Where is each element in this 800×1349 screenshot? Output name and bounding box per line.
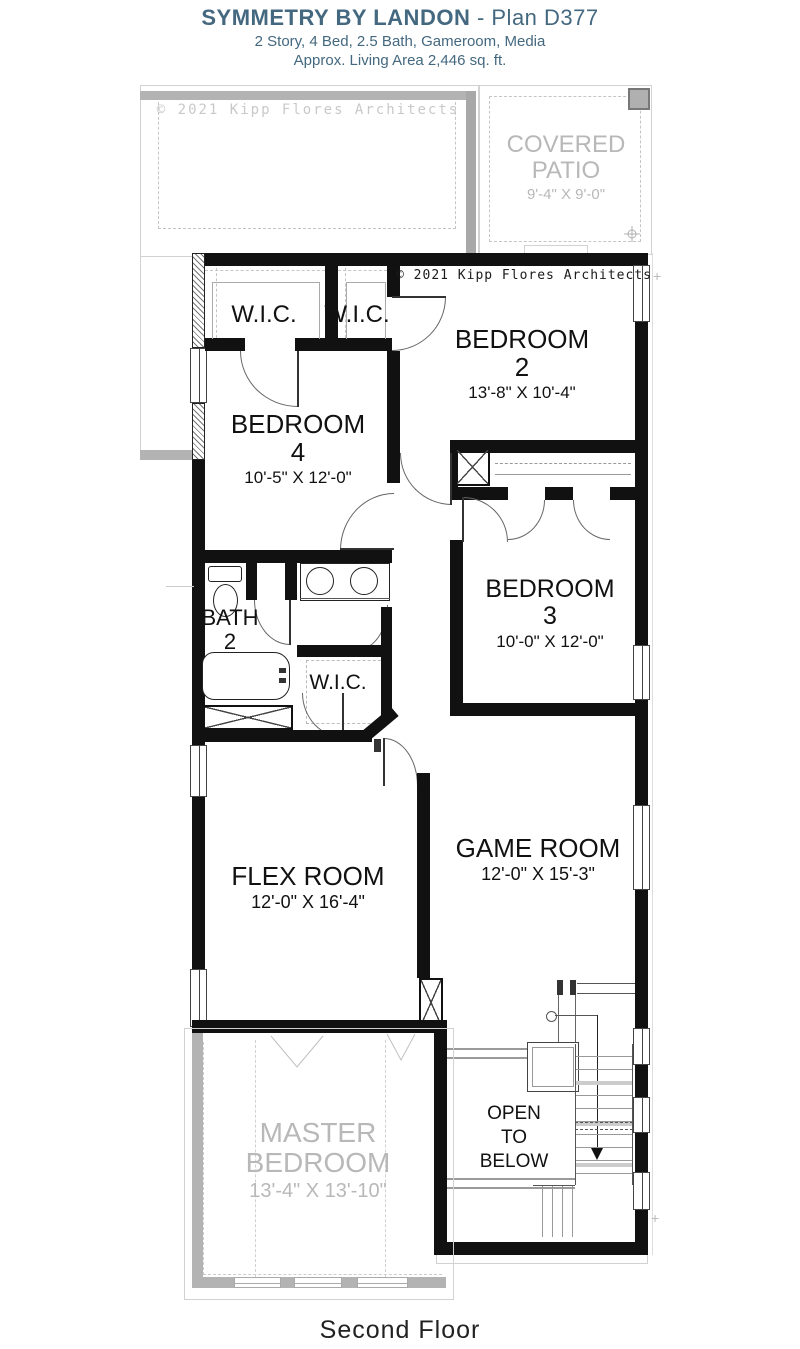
wall <box>192 550 392 563</box>
wall <box>635 1133 648 1172</box>
plan-subtitle: 2 Story, 4 Bed, 2.5 Bath, Gameroom, Medi… <box>0 33 800 50</box>
copyright-first-floor: © 2021 Kipp Flores Architects <box>157 102 459 118</box>
room-label-wic-hall: W.I.C. <box>307 672 368 695</box>
door-leaf <box>374 739 381 752</box>
roof-edge-line <box>140 255 141 460</box>
floor-plan-page: SYMMETRY BY LANDON - Plan D377 2 Story, … <box>0 0 800 1349</box>
first-floor-wall <box>408 1277 446 1288</box>
stair-treads <box>575 1044 633 1185</box>
room-dims: 13'-8" X 10'-4" <box>455 384 589 402</box>
door-leaf <box>462 497 464 542</box>
door-arc <box>463 497 508 542</box>
door-leaf <box>392 296 446 298</box>
plan-area: Approx. Living Area 2,446 sq. ft. <box>0 52 800 69</box>
stair-header-post <box>570 980 576 995</box>
room-name: GAME ROOM <box>456 834 621 862</box>
stair-header-line <box>577 983 635 984</box>
ceiling-break-mark <box>386 1033 416 1063</box>
sink <box>350 567 378 595</box>
closet-rod-dashed <box>495 463 631 464</box>
room-label-bedroom2: BEDROOM 2 13'-8" X 10'-4" <box>455 325 589 403</box>
room-label-open-to-below: OPEN TO BELOW <box>480 1102 549 1173</box>
room-name: TO <box>480 1126 549 1150</box>
stair-header-post <box>557 980 563 995</box>
room-name: W.I.C. <box>231 302 296 328</box>
room-name: BATH <box>201 606 258 630</box>
wall <box>635 890 648 1028</box>
door-arc <box>400 453 452 505</box>
room-label-wic-bedroom4: W.I.C. <box>231 302 296 328</box>
room-name: MASTER <box>246 1118 391 1148</box>
dimension-tick <box>166 586 194 587</box>
roof-edge-line <box>652 253 653 1255</box>
wall <box>610 487 648 500</box>
door-leaf <box>297 351 299 407</box>
tub-faucet <box>279 678 286 683</box>
sink <box>306 567 334 595</box>
wall <box>297 645 392 657</box>
patio-column <box>628 88 650 110</box>
room-label-master: MASTER BEDROOM 13'-4" X 13'-10" <box>246 1118 391 1202</box>
wall <box>417 773 430 978</box>
plan-number: - Plan D377 <box>470 5 598 30</box>
room-label-bath2: BATH 2 <box>201 606 258 654</box>
floor-caption: Second Floor <box>0 1316 800 1345</box>
wall <box>434 1242 648 1255</box>
page-title: SYMMETRY BY LANDON - Plan D377 <box>0 5 800 31</box>
wall <box>338 338 392 351</box>
window <box>190 348 207 403</box>
wall <box>450 703 648 716</box>
first-floor-window <box>234 1277 281 1288</box>
closet-shelf-line <box>495 474 631 475</box>
plan-header: SYMMETRY BY LANDON - Plan D377 2 Story, … <box>0 5 800 69</box>
wall <box>635 1065 648 1097</box>
room-dims: 12'-0" X 16'-4" <box>231 893 384 912</box>
room-number: 2 <box>455 353 589 381</box>
window <box>190 745 207 797</box>
room-dims: 10'-0" X 12'-0" <box>485 633 614 651</box>
room-name: BEDROOM <box>246 1148 391 1178</box>
first-floor-wall <box>281 1277 294 1288</box>
first-floor-window <box>357 1277 408 1288</box>
window <box>633 1172 650 1210</box>
stair-railing <box>447 1048 527 1059</box>
wall <box>381 607 392 720</box>
stair-dashed-line <box>575 1129 633 1130</box>
stair-dashed-line <box>575 1122 633 1123</box>
first-floor-window <box>294 1277 342 1288</box>
door-leaf <box>289 600 291 645</box>
room-number: 2 <box>201 630 258 654</box>
room-label-covered-patio: COVERED PATIO 9'-4" X 9'-0" <box>507 132 626 203</box>
wall <box>387 351 400 483</box>
room-name: BEDROOM <box>485 576 614 603</box>
stair-edge-line <box>575 995 576 1045</box>
door-arc <box>384 738 418 786</box>
window <box>633 645 650 700</box>
stair-start-marker <box>546 1011 557 1022</box>
stair-arrow-line <box>555 1015 597 1016</box>
plan-series-name: SYMMETRY BY LANDON <box>201 5 470 30</box>
room-label-game: GAME ROOM 12'-0" X 15'-3" <box>456 834 621 885</box>
door-arc <box>340 493 394 550</box>
room-name: W.I.C. <box>309 672 366 695</box>
stair-header-line <box>577 993 635 994</box>
survey-marker-icon <box>624 226 640 242</box>
first-floor-wall <box>466 91 476 253</box>
room-name: FLEX ROOM <box>231 862 384 890</box>
ceiling-break-mark <box>270 1035 324 1069</box>
hatched-wall <box>192 403 205 460</box>
stair-treads-lower <box>533 1185 575 1237</box>
dimension-marker-icon: + <box>651 1210 659 1226</box>
wall <box>285 563 297 600</box>
first-floor-wall <box>342 1277 357 1288</box>
room-name: PATIO <box>507 158 626 184</box>
window <box>633 1097 650 1133</box>
wall <box>192 797 205 969</box>
room-dims: 12'-0" X 15'-3" <box>456 865 621 884</box>
room-name: COVERED <box>507 132 626 158</box>
door-leaf <box>383 738 385 786</box>
room-name: W.I.C. <box>324 302 389 328</box>
bathtub <box>202 652 290 700</box>
door-arc <box>240 351 298 407</box>
room-number: 4 <box>231 438 365 466</box>
room-label-bedroom4: BEDROOM 4 10'-5" X 12'-0" <box>231 410 365 488</box>
first-floor-wall <box>140 91 467 100</box>
foundation-line <box>436 1255 648 1264</box>
room-label-wic-bedroom2: W.I.C. <box>324 302 389 328</box>
room-dims: 9'-4" X 9'-0" <box>507 187 626 203</box>
door-arc <box>254 600 290 645</box>
wall <box>192 730 372 742</box>
door-arc <box>508 500 545 540</box>
first-floor-wall <box>192 1033 203 1288</box>
toilet-tank <box>208 566 242 582</box>
wall <box>192 460 205 745</box>
stair-landing-box <box>527 1042 579 1092</box>
window <box>190 969 207 1027</box>
wall <box>246 563 257 600</box>
copyright-second-floor: © 2021 Kipp Flores Architects <box>396 268 652 283</box>
room-name: BEDROOM <box>231 410 365 438</box>
room-label-flex: FLEX ROOM 12'-0" X 16'-4" <box>231 862 384 913</box>
room-dims: 13'-4" X 13'-10" <box>246 1181 391 1202</box>
chase-xbox <box>455 448 490 486</box>
wall <box>635 322 648 645</box>
window <box>633 1028 650 1065</box>
room-name: OPEN <box>480 1102 549 1126</box>
room-number: 3 <box>485 603 614 630</box>
room-name: BELOW <box>480 1150 549 1174</box>
wall <box>192 253 648 266</box>
hatched-wall <box>192 253 205 348</box>
wall <box>205 338 245 351</box>
room-label-bedroom3: BEDROOM 3 10'-0" X 12'-0" <box>485 576 614 651</box>
linen-xbox <box>203 705 293 730</box>
first-floor-wall <box>140 450 192 460</box>
closet-rod-dashed <box>205 270 325 271</box>
dimension-marker-icon: + <box>653 268 661 284</box>
door-arc <box>573 500 610 540</box>
room-dims: 10'-5" X 12'-0" <box>231 469 365 487</box>
window <box>633 805 650 890</box>
first-floor-wall <box>192 1277 234 1288</box>
wall <box>295 338 338 351</box>
wall <box>452 487 508 500</box>
room-name: BEDROOM <box>455 325 589 353</box>
door-arc <box>392 297 446 351</box>
wall <box>450 540 463 716</box>
tub-faucet <box>279 668 286 673</box>
stair-edge-line <box>558 995 559 1045</box>
wall <box>545 487 573 500</box>
counter-edge-line <box>300 598 390 599</box>
